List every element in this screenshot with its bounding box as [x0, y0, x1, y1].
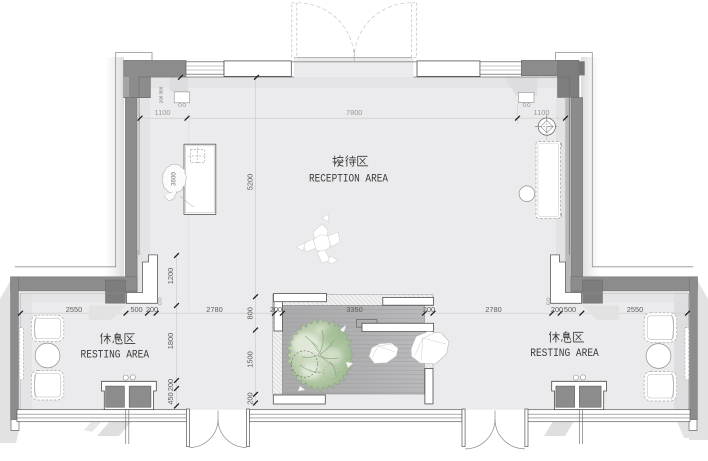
svg-text:1800: 1800	[166, 333, 175, 349]
svg-text:RECEPTION AREA: RECEPTION AREA	[309, 174, 388, 186]
svg-text:RESTING AREA: RESTING AREA	[81, 349, 150, 361]
svg-text:2550: 2550	[627, 305, 643, 314]
svg-text:200: 200	[146, 305, 158, 314]
svg-text:2780: 2780	[206, 305, 222, 314]
svg-text:200: 200	[551, 305, 563, 314]
svg-text:200: 200	[166, 379, 175, 391]
svg-text:500: 500	[130, 305, 142, 314]
svg-text:1200: 1200	[166, 268, 175, 284]
svg-text:500: 500	[564, 305, 576, 314]
svg-text:2550: 2550	[66, 305, 82, 314]
svg-text:800: 800	[245, 307, 254, 319]
svg-text:5200: 5200	[245, 174, 254, 190]
svg-text:1500: 1500	[245, 351, 254, 367]
svg-text:3350: 3350	[346, 305, 362, 314]
svg-text:200: 200	[423, 305, 435, 314]
svg-text:1100: 1100	[534, 108, 550, 117]
svg-text:200: 200	[270, 305, 282, 314]
svg-text:1100: 1100	[155, 108, 171, 117]
svg-text:3600: 3600	[171, 172, 178, 186]
svg-text:200: 200	[245, 392, 254, 404]
svg-text:200 350: 200 350	[159, 86, 164, 103]
svg-text:450: 450	[166, 392, 175, 404]
svg-text:2780: 2780	[485, 305, 501, 314]
svg-text:RESTING AREA: RESTING AREA	[530, 348, 599, 360]
svg-text:7800: 7800	[346, 108, 362, 117]
